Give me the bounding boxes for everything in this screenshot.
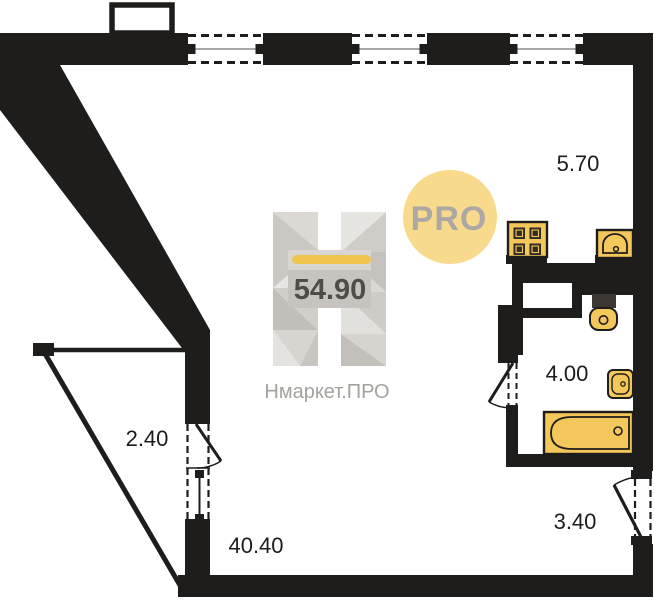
entrance-door-leaf: [614, 485, 641, 537]
room-area-label: 40.40: [228, 533, 283, 558]
pro-badge: PRO: [403, 170, 497, 264]
wall-shaft-bottom: [518, 308, 582, 318]
wall-balcony-pier: [185, 523, 210, 577]
fixtures: [506, 222, 633, 454]
wall-right-upper: [633, 33, 653, 471]
balcony-area-label: 2.40: [126, 426, 169, 451]
pro-badge-label: PRO: [411, 200, 488, 238]
kitchen-sink-icon: [595, 230, 633, 264]
wall-bottom: [178, 575, 653, 597]
roof-shaft-outline: [112, 5, 172, 33]
total-area-label: 54.90: [294, 274, 367, 306]
balcony-glazing-diagonal: [44, 352, 181, 587]
window-3: [510, 36, 583, 63]
logo-accent-bar: [292, 255, 371, 264]
hallway-area-label: 3.40: [554, 509, 597, 534]
bathtub-icon: [544, 412, 633, 454]
wall-top-segment: [263, 33, 352, 65]
brand-label: Нмаркет.ПРО: [264, 381, 389, 403]
wall-bath-bottom: [506, 454, 633, 467]
balcony-door-window-block: [186, 424, 221, 522]
wall-kitchen-counter: [512, 263, 633, 283]
facade-windows: [188, 36, 583, 63]
watermark-logo: 54.90 Нмаркет.ПРО: [264, 212, 389, 403]
wall-top-segment: [427, 33, 510, 65]
entrance-jamb-bottom: [631, 536, 652, 545]
window-1: [188, 36, 263, 63]
floor-plan: 54.90 Нмаркет.ПРО PRO 5.70 4.00 3.40 2.4…: [0, 0, 654, 600]
entrance-door-swing-arc: [614, 477, 636, 485]
wall-bath-door-jamb-top: [506, 353, 518, 363]
toilet-icon: [590, 294, 617, 330]
kitchen-area-label: 5.70: [557, 151, 600, 176]
balcony-block-jamb-top: [185, 416, 210, 424]
window-2: [352, 36, 427, 63]
bathroom-sink-icon: [608, 370, 633, 398]
balcony-glazing: [44, 350, 186, 587]
stove-icon: [506, 222, 547, 264]
bathroom-door: [489, 363, 517, 408]
wall-diagonal-facade: [0, 33, 210, 420]
bathroom-area-label: 4.00: [546, 361, 589, 386]
entrance-door: [614, 477, 651, 537]
